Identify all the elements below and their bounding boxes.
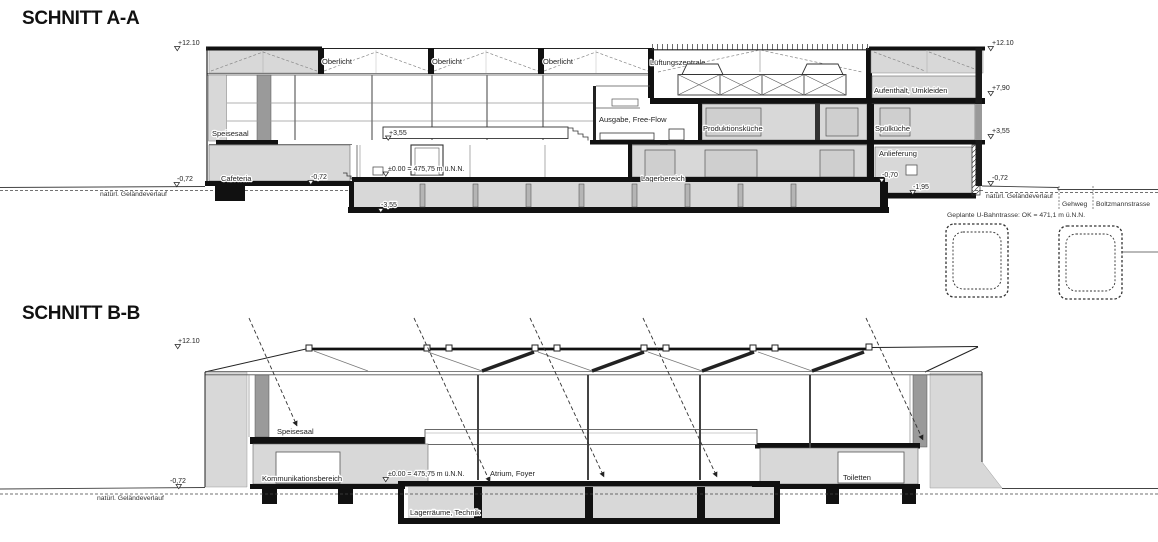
b-level-072: -0,72 (170, 478, 186, 485)
a-level-355-inner: +3,55 (389, 130, 407, 137)
label-toiletten: Toiletten (843, 473, 871, 482)
b-level-markers: +12.10 -0,72 (170, 338, 200, 489)
label-produktionskueche: Produktionsküche (703, 124, 763, 133)
b-gelaende: natürl. Geländeverlauf (97, 495, 164, 502)
label-oberlicht-2: Oberlicht (432, 57, 463, 66)
a-level-195: -1,95 (913, 184, 929, 191)
a-right-wall (976, 48, 983, 186)
section-b-title: SCHNITT B-B (22, 303, 140, 324)
a-level-355n: -3,55 (381, 202, 397, 209)
label-speisesaal-b: Speisesaal (277, 427, 314, 436)
a-level-070: -0,70 (882, 172, 898, 179)
label-cafeteria: Cafeteria (221, 174, 252, 183)
b-mezzanine-parapet (425, 430, 757, 445)
label-kommunikationsbereich: Kommunikationsbereich (262, 474, 342, 483)
a-stair-band (568, 128, 588, 141)
a-foundation-pier (215, 186, 245, 201)
a-level-790: +7,90 (992, 85, 1010, 92)
label-atrium: Atrium, Foyer (490, 469, 536, 478)
b-right-wall (913, 375, 927, 447)
architectural-section-sheet: SCHNITT A-A (0, 0, 1158, 542)
label-anlieferung: Anlieferung (879, 149, 917, 158)
label-boltzmannstrasse: Boltzmannstrasse (1096, 201, 1150, 208)
section-a-title: SCHNITT A-A (22, 8, 140, 29)
b-left-wall (255, 375, 269, 437)
section-b-drawing: SCHNITT B-B (0, 303, 1158, 524)
a-hvac-equipment (678, 64, 846, 95)
a-level-top-right: +12.10 (992, 40, 1014, 47)
label-ubahn: Geplante U-Bahntrasse: OK = 471,1 m ü.N.… (947, 212, 1085, 219)
b-interior: Speisesaal Kommunikationsbereich Atrium,… (249, 375, 927, 489)
label-oberlicht-3: Oberlicht (543, 57, 574, 66)
a-gelaende-left: natürl. Geländeverlauf (100, 191, 167, 198)
label-gehweg: Gehweg (1062, 201, 1088, 208)
label-speisesaal-a: Speisesaal (212, 129, 249, 138)
label-lagerraeume: Lagerräume, Technik (410, 508, 480, 517)
b-level-zero: ±0.00 = 475,75 m ü.N.N. (388, 471, 464, 478)
drawing-canvas: SCHNITT A-A (0, 0, 1158, 542)
a-ventroof-hatch (652, 44, 870, 50)
a-level-072-right: -0,72 (992, 175, 1008, 182)
a-level-355-right: +3,55 (992, 128, 1010, 135)
a-level-072-cafeteria: -0,72 (311, 174, 327, 181)
a-basement: -3,55 (215, 182, 889, 213)
label-lagerbereich: Lagerbereich (641, 174, 685, 183)
a-gelaende-right: natürl. Geländeverlauf (986, 193, 1053, 200)
a-level-072-left: -0,72 (177, 176, 193, 183)
label-ausgabe: Ausgabe, Free-Flow (599, 115, 667, 124)
a-level-zero: ±0.00 = 475,75 m ü.N.N. (388, 166, 464, 173)
section-a-drawing: SCHNITT A-A (0, 8, 1158, 299)
label-spuelkueche: Spülküche (875, 124, 910, 133)
a-speisesaal-column (257, 75, 271, 141)
label-oberlicht-1: Oberlicht (322, 57, 353, 66)
label-aufenthalt: Aufenthalt, Umkleiden (874, 86, 947, 95)
a-level-top-left: +12.10 (178, 40, 200, 47)
b-level-top: +12.10 (178, 338, 200, 345)
